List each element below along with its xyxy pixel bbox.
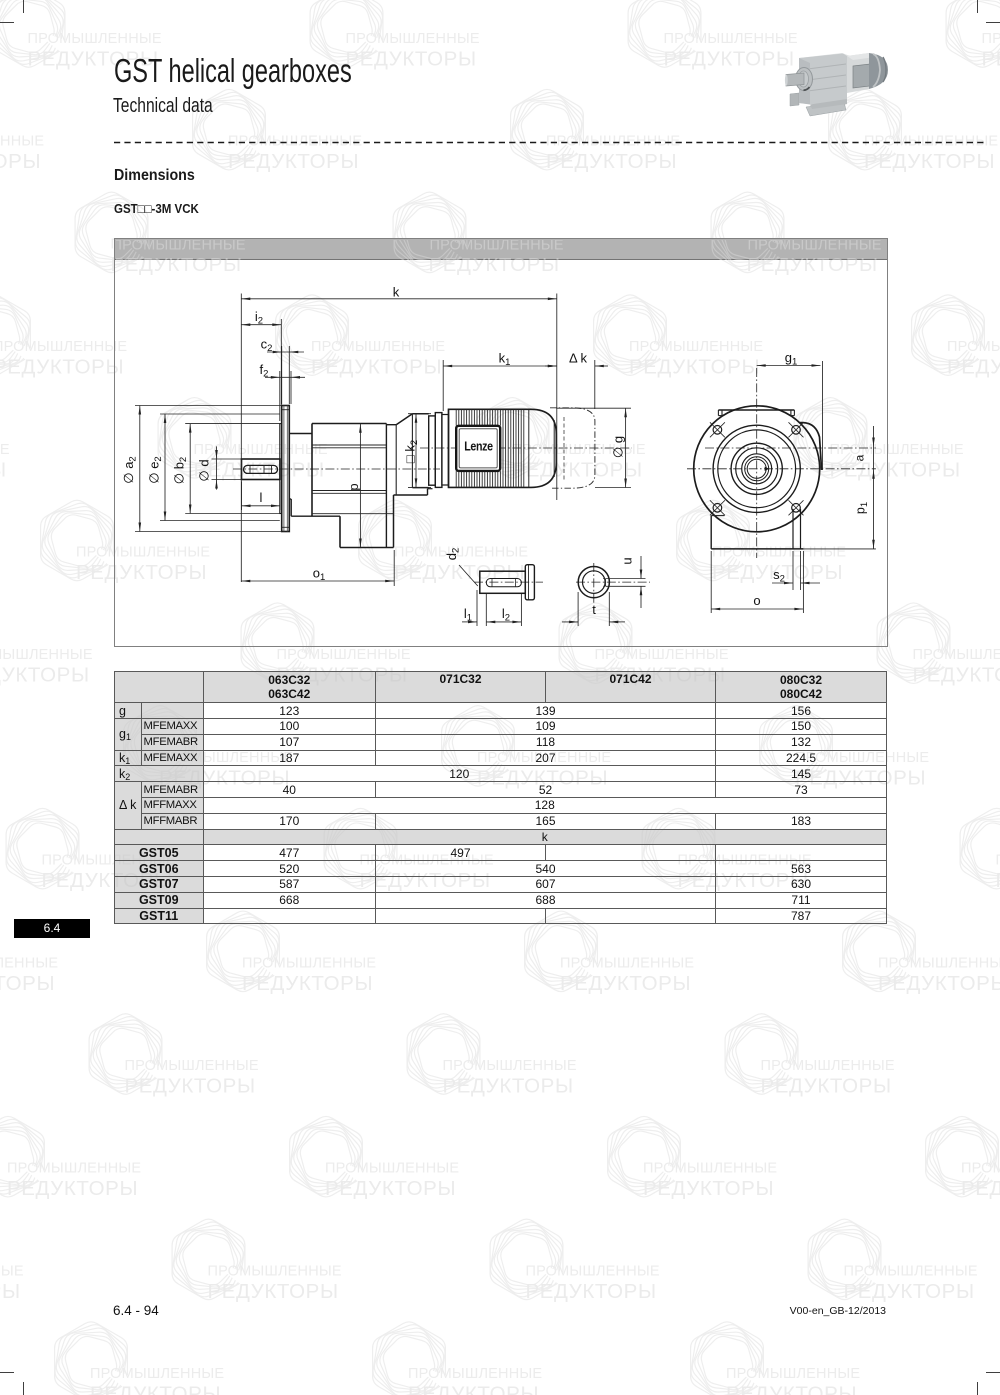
svg-text:t: t — [592, 602, 596, 617]
svg-text:∅ g: ∅ g — [611, 436, 626, 458]
svg-text:∅ e2: ∅ e2 — [147, 456, 165, 483]
svg-text:l1: l1 — [464, 606, 472, 624]
svg-text:□ k2: □ k2 — [403, 440, 421, 463]
svg-text:k: k — [393, 285, 400, 300]
svg-text:a: a — [853, 454, 867, 461]
svg-text:f2: f2 — [260, 362, 269, 380]
svg-text:∅ a2: ∅ a2 — [121, 456, 139, 483]
svg-text:o: o — [753, 593, 760, 608]
svg-text:s2: s2 — [773, 567, 785, 585]
svg-text:k1: k1 — [499, 351, 511, 369]
svg-text:g1: g1 — [785, 350, 798, 368]
svg-text:d2: d2 — [444, 548, 462, 561]
svg-text:i2: i2 — [255, 309, 263, 327]
svg-text:p1: p1 — [854, 502, 871, 514]
svg-text:c2: c2 — [261, 337, 273, 355]
svg-text:Lenze: Lenze — [464, 438, 493, 453]
svg-text:Δ k: Δ k — [569, 351, 588, 366]
svg-text:o1: o1 — [313, 566, 326, 584]
svg-text:l2: l2 — [502, 606, 510, 624]
svg-text:∅ b2: ∅ b2 — [171, 457, 189, 484]
svg-text:∅ d: ∅ d — [197, 459, 212, 481]
svg-text:u: u — [620, 557, 635, 564]
svg-text:l: l — [260, 490, 263, 505]
svg-text:p: p — [346, 483, 361, 490]
